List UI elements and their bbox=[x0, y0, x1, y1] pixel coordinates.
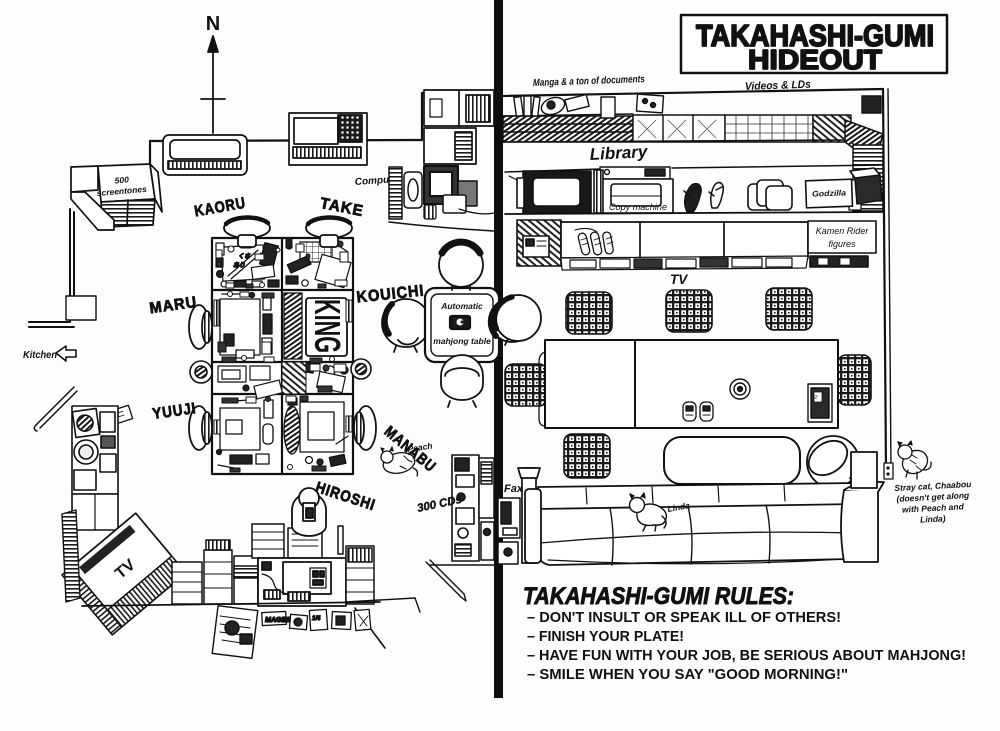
svg-text:figures: figures bbox=[828, 239, 856, 249]
svg-text:MAGES: MAGES bbox=[265, 617, 291, 624]
svg-text:Copy machine: Copy machine bbox=[609, 202, 667, 213]
svg-text:Videos & LDs: Videos & LDs bbox=[745, 79, 811, 93]
svg-text:1/4: 1/4 bbox=[312, 616, 321, 622]
svg-text:500: 500 bbox=[114, 174, 129, 185]
svg-text:Fax: Fax bbox=[504, 483, 524, 495]
svg-text:– DON'T INSULT OR SPEAK ILL OF: – DON'T INSULT OR SPEAK ILL OF OTHERS! bbox=[527, 609, 841, 626]
svg-text:N: N bbox=[206, 13, 220, 35]
svg-text:Godzilla: Godzilla bbox=[812, 188, 847, 198]
svg-text:mahjong table: mahjong table bbox=[433, 336, 491, 346]
svg-text:Library: Library bbox=[589, 142, 649, 164]
svg-text:TV: TV bbox=[670, 272, 688, 287]
svg-text:マ: マ bbox=[813, 395, 818, 401]
svg-text:– HAVE FUN WITH YOUR JOB, BE S: – HAVE FUN WITH YOUR JOB, BE SERIOUS ABO… bbox=[527, 647, 966, 664]
svg-text:あり: あり bbox=[233, 262, 245, 269]
svg-text:– FINISH YOUR PLATE!: – FINISH YOUR PLATE! bbox=[527, 628, 684, 645]
svg-text:HIDEOUT: HIDEOUT bbox=[748, 44, 882, 75]
svg-text:Kitchen: Kitchen bbox=[23, 349, 57, 361]
svg-text:– SMILE WHEN YOU SAY "GOOD MOR: – SMILE WHEN YOU SAY "GOOD MORNING!" bbox=[527, 666, 848, 683]
svg-text:Kamen Rider: Kamen Rider bbox=[816, 226, 870, 236]
svg-text:Automatic: Automatic bbox=[440, 301, 483, 311]
svg-text:KING: KING bbox=[307, 299, 348, 353]
svg-text:TAKAHASHI-GUMI RULES:: TAKAHASHI-GUMI RULES: bbox=[523, 583, 794, 610]
svg-text:くさ: くさ bbox=[238, 252, 251, 260]
svg-text:Linda): Linda) bbox=[920, 513, 946, 524]
